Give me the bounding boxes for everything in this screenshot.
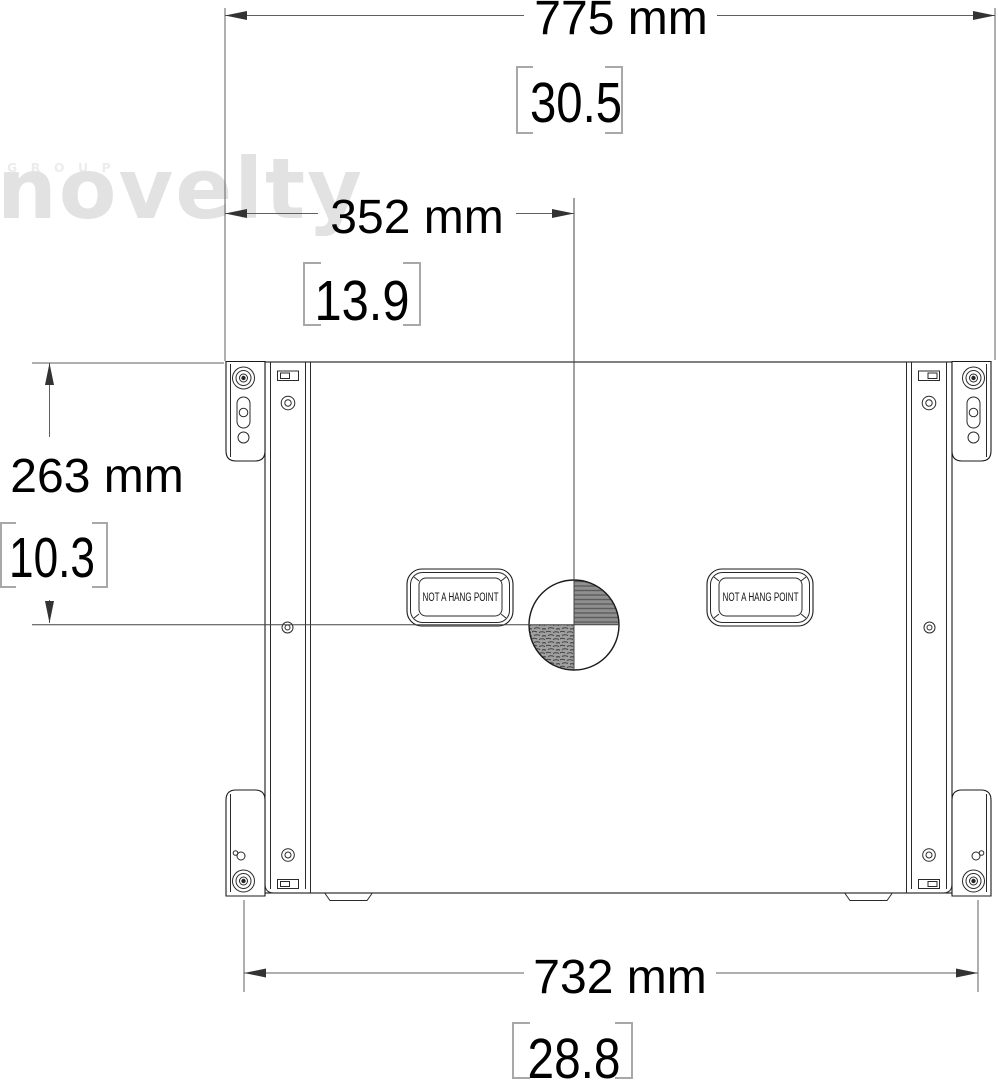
arrow-up-icon	[45, 363, 54, 385]
bottom-tab-left	[325, 894, 372, 901]
rigging-plate-top-right	[952, 362, 991, 462]
handle-left-label: NOT A HANG POINT	[423, 592, 499, 604]
watermark-logo: GROUP novelty	[0, 140, 364, 238]
bottom-tab-right	[845, 894, 892, 901]
dim-352-inches-group: 13.9	[304, 263, 420, 333]
dim-352-mm-text: 352 mm	[330, 191, 503, 244]
arrow-right-icon	[552, 209, 574, 218]
handle-right-label: NOT A HANG POINT	[723, 592, 799, 604]
drawing-svg: GROUP novelty	[0, 0, 998, 1080]
rigging-plate-top-left	[226, 362, 265, 462]
dim-263-mm-text: 263 mm	[10, 450, 183, 503]
dim-263-inches-text: 10.3	[9, 526, 95, 590]
dim-775-mm-text: 775 mm	[534, 0, 707, 45]
dimension-cog-offset-y: 263 mm 10.3	[1, 363, 224, 623]
arrow-left-icon	[244, 969, 266, 978]
dimension-bottom-width: 732 mm 28.8	[244, 900, 978, 1080]
arrow-down-icon	[45, 601, 54, 623]
dim-775-inches-group: 30.5	[517, 67, 622, 135]
dim-352-inches-text: 13.9	[315, 269, 410, 333]
arrow-right-icon	[956, 969, 978, 978]
cabinet-drawing: NOT A HANG POINT NOT A HANG POINT	[226, 362, 991, 901]
technical-drawing-page: GROUP novelty	[0, 0, 998, 1080]
arrow-left-icon	[225, 11, 247, 20]
dim-775-inches-text: 30.5	[530, 71, 622, 135]
watermark-brand-text: novelty	[0, 140, 364, 238]
cabinet-body	[265, 362, 952, 893]
dim-732-inches-text: 28.8	[528, 1027, 621, 1080]
arrow-right-icon	[973, 11, 995, 20]
dim-732-mm-text: 732 mm	[533, 951, 706, 1004]
dim-732-inches-group: 28.8	[513, 1023, 632, 1080]
dim-263-inches-group: 10.3	[1, 523, 107, 590]
